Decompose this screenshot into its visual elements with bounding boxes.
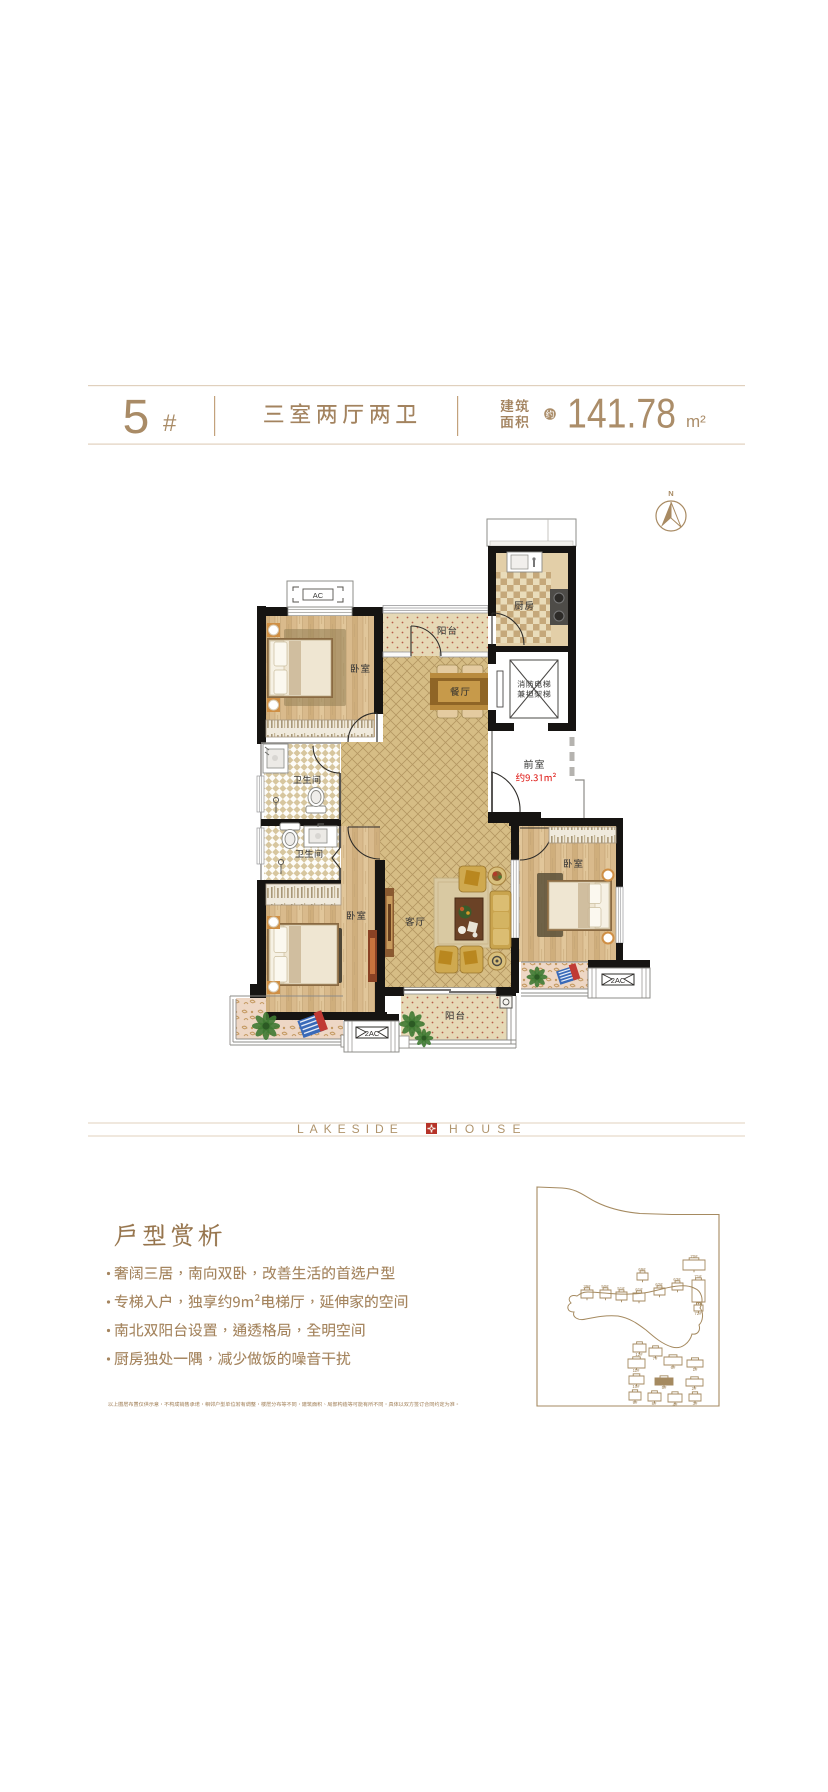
svg-text:12#: 12# <box>635 1352 643 1357</box>
svg-text:2AC: 2AC <box>611 976 626 985</box>
svg-text:10#: 10# <box>632 1384 640 1389</box>
svg-text:7#: 7# <box>653 1356 658 1361</box>
svg-text:2AC: 2AC <box>365 1029 380 1038</box>
svg-text:62#: 62# <box>655 1282 663 1287</box>
svg-text:141.78: 141.78 <box>567 390 676 437</box>
svg-text:3#: 3# <box>693 1401 698 1406</box>
svg-text:39#: 39# <box>583 1284 591 1289</box>
svg-text:9#: 9# <box>633 1400 638 1405</box>
svg-text:11#: 11# <box>633 1368 640 1373</box>
svg-text:70#: 70# <box>690 1254 698 1259</box>
svg-text:N: N <box>668 489 673 498</box>
svg-text:5: 5 <box>123 391 150 444</box>
svg-text:4#: 4# <box>673 1402 678 1407</box>
svg-text:71#: 71# <box>694 1274 702 1279</box>
svg-text:63#: 63# <box>673 1277 681 1282</box>
svg-text:AC: AC <box>313 591 324 600</box>
svg-text:50#: 50# <box>601 1284 609 1289</box>
svg-text:8#: 8# <box>652 1401 657 1406</box>
svg-text:6#: 6# <box>671 1365 676 1370</box>
svg-text:51#: 51# <box>617 1286 625 1291</box>
svg-text:69#: 69# <box>638 1267 646 1272</box>
svg-text:2#: 2# <box>692 1386 697 1391</box>
svg-text:5#: 5# <box>662 1385 667 1390</box>
svg-text:1#: 1# <box>693 1367 698 1372</box>
svg-text:61#: 61# <box>635 1287 643 1292</box>
svg-text:m²: m² <box>686 412 706 431</box>
svg-text:LAKESIDE: LAKESIDE <box>297 1122 404 1136</box>
svg-text:HOUSE: HOUSE <box>449 1122 528 1136</box>
svg-text:72#: 72# <box>694 1311 702 1316</box>
svg-text:#: # <box>163 410 177 437</box>
